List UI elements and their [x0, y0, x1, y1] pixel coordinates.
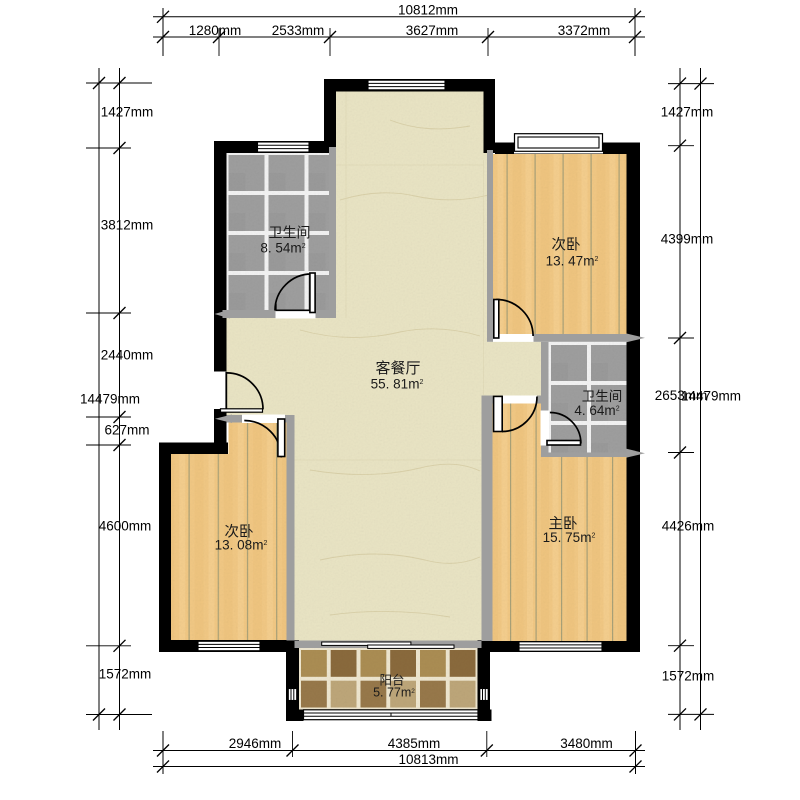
svg-text:卫生间: 卫生间: [582, 389, 623, 404]
svg-text:627mm: 627mm: [104, 423, 149, 438]
svg-text:2946mm: 2946mm: [229, 736, 282, 751]
svg-text:1572mm: 1572mm: [662, 669, 715, 684]
svg-text:4600mm: 4600mm: [99, 519, 152, 534]
svg-text:14479mm: 14479mm: [80, 392, 140, 407]
svg-text:10813mm: 10813mm: [398, 752, 458, 767]
svg-text:10812mm: 10812mm: [398, 3, 458, 18]
svg-text:1427mm: 1427mm: [661, 105, 714, 120]
svg-text:1427mm: 1427mm: [101, 105, 154, 120]
svg-text:卫生间: 卫生间: [269, 225, 311, 241]
svg-text:次卧: 次卧: [552, 237, 581, 254]
svg-text:15. 75m2: 15. 75m2: [543, 530, 596, 545]
svg-text:1280mm: 1280mm: [189, 23, 242, 38]
svg-text:8. 54m2: 8. 54m2: [260, 241, 305, 256]
svg-text:客餐厅: 客餐厅: [375, 360, 420, 377]
svg-text:55. 81m2: 55. 81m2: [371, 376, 424, 391]
svg-text:14479mm: 14479mm: [681, 389, 741, 404]
svg-text:4385mm: 4385mm: [388, 736, 441, 751]
svg-text:2533mm: 2533mm: [272, 23, 325, 38]
svg-text:3627mm: 3627mm: [406, 23, 459, 38]
svg-text:5. 77m2: 5. 77m2: [373, 686, 415, 700]
svg-text:3372mm: 3372mm: [558, 23, 611, 38]
svg-text:3812mm: 3812mm: [101, 218, 154, 233]
svg-text:13. 08m2: 13. 08m2: [215, 537, 268, 552]
svg-text:13. 47m2: 13. 47m2: [546, 254, 599, 269]
svg-text:4426mm: 4426mm: [662, 519, 715, 534]
svg-text:4. 64m2: 4. 64m2: [574, 403, 619, 418]
svg-text:4399mm: 4399mm: [661, 232, 714, 247]
svg-text:3480mm: 3480mm: [560, 736, 613, 751]
svg-text:1572mm: 1572mm: [99, 667, 152, 682]
svg-text:2440mm: 2440mm: [101, 348, 154, 363]
